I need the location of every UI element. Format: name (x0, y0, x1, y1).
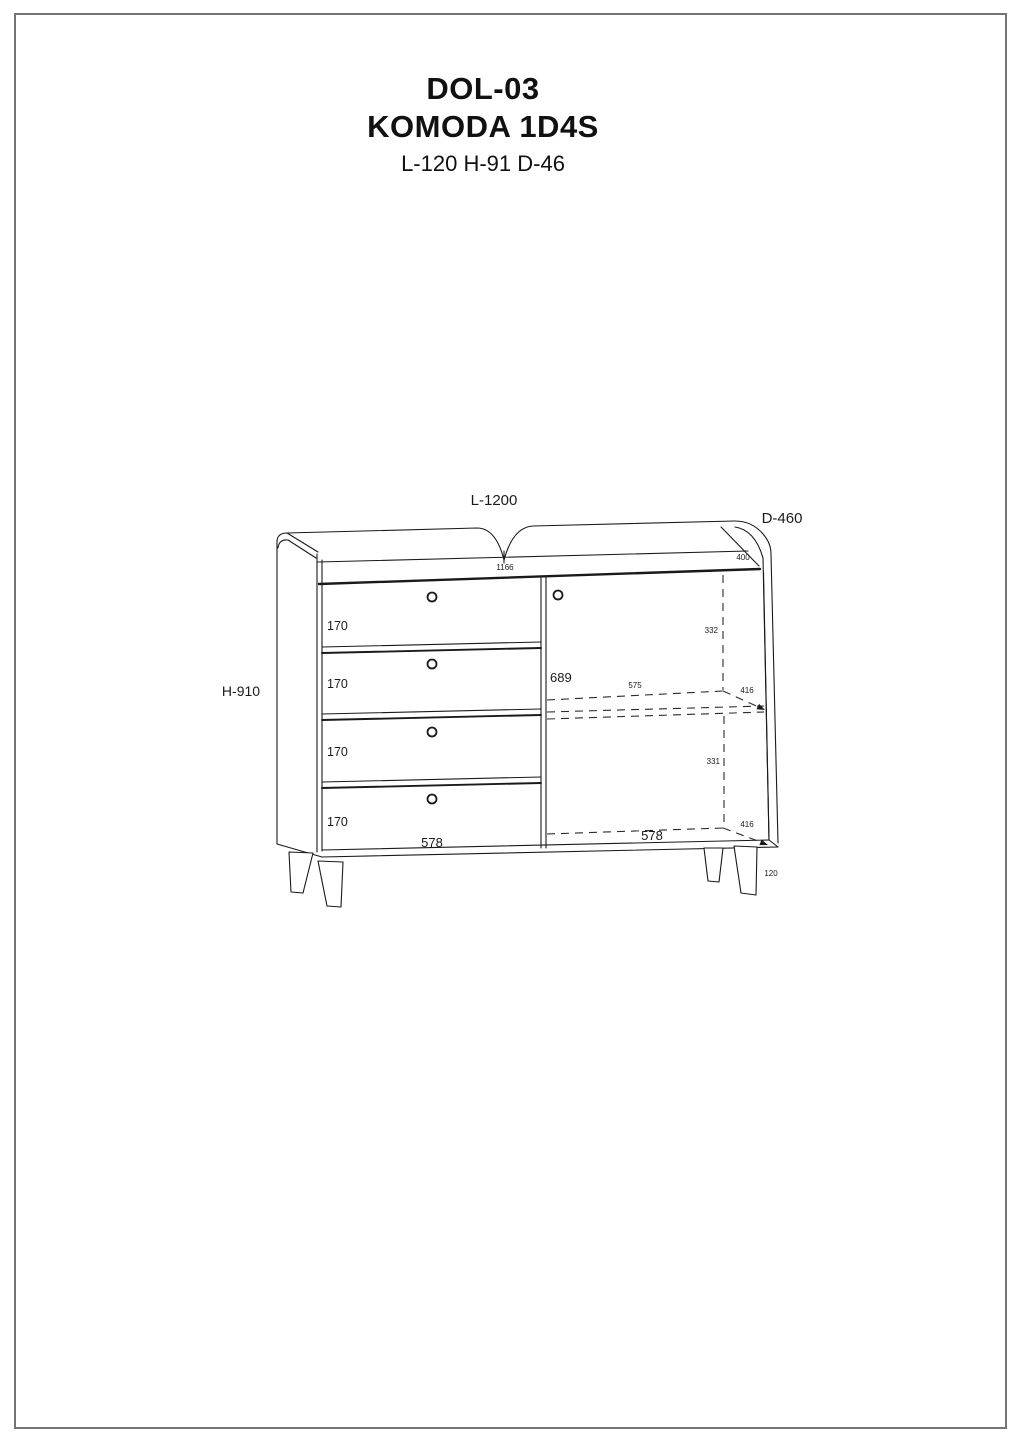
bottom-interior-line (547, 828, 723, 834)
leg-front-left (318, 861, 343, 907)
hidden-interior-lines (547, 575, 766, 844)
page: DOL-03 KOMODA 1D4S L-120 H-91 D-46 (0, 0, 1024, 1449)
leg-back-left (289, 852, 313, 893)
dim-door-section-width: 578 (641, 828, 663, 843)
dim-drawer-section-width: 578 (421, 835, 443, 850)
drawer-1-bottom (322, 642, 541, 647)
drawer-2-top (322, 648, 541, 653)
drawer-4-handle (428, 795, 437, 804)
shelf-front-edge-top (547, 706, 764, 712)
dim-top-depth: 400 (736, 553, 750, 562)
left-side-panel (277, 533, 318, 844)
dim-height: H-910 (222, 683, 260, 699)
dim-shelf-depth-upper: 416 (740, 686, 754, 695)
furniture-drawing: L-1200 D-460 H-910 1166 400 170 170 170 … (0, 0, 1024, 1449)
door-right-edge (764, 572, 770, 840)
dim-drawer-height-4: 170 (327, 815, 348, 829)
shelf-front-edge-bottom (547, 712, 764, 719)
arrowhead-upper (757, 704, 766, 710)
cabinet-outline (277, 521, 778, 857)
drawer-4-top (322, 783, 541, 788)
top-panel-front-edge (319, 569, 760, 584)
door-handle (554, 591, 563, 600)
drawer-3-handle (428, 728, 437, 737)
bottom-right-corner (769, 840, 778, 847)
drawer-2-bottom (322, 709, 541, 714)
dim-shelf-width: 575 (628, 681, 642, 690)
dim-drawer-height-2: 170 (327, 677, 348, 691)
shelf-depth-lower-line (723, 828, 766, 844)
dim-lower-compartment: 331 (707, 757, 721, 766)
left-side-panel-inner-contour (278, 540, 316, 558)
drawer-3-bottom (322, 777, 541, 782)
drawer-3-top (322, 715, 541, 720)
dim-upper-compartment: 332 (705, 626, 719, 635)
drawer-2-handle (428, 660, 437, 669)
dim-length: L-1200 (471, 492, 518, 509)
dim-top-width: 1166 (496, 563, 514, 572)
dim-leg-height: 120 (764, 869, 778, 878)
dim-drawer-height-1: 170 (327, 619, 348, 633)
dim-drawer-height-3: 170 (327, 745, 348, 759)
top-panel-back-edge (318, 551, 748, 562)
back-rail-left-segment (287, 528, 504, 560)
leg-back-right (704, 848, 723, 882)
dim-shelf-depth-lower: 416 (740, 820, 754, 829)
legs (289, 846, 757, 907)
drawer-1-handle (428, 593, 437, 602)
handles (428, 591, 563, 804)
dim-door-interior-height: 689 (550, 670, 572, 685)
dimension-labels: L-1200 D-460 H-910 1166 400 170 170 170 … (222, 492, 803, 878)
leg-front-right (734, 846, 757, 895)
dim-depth: D-460 (762, 510, 803, 527)
shelf-width-line (547, 691, 723, 700)
